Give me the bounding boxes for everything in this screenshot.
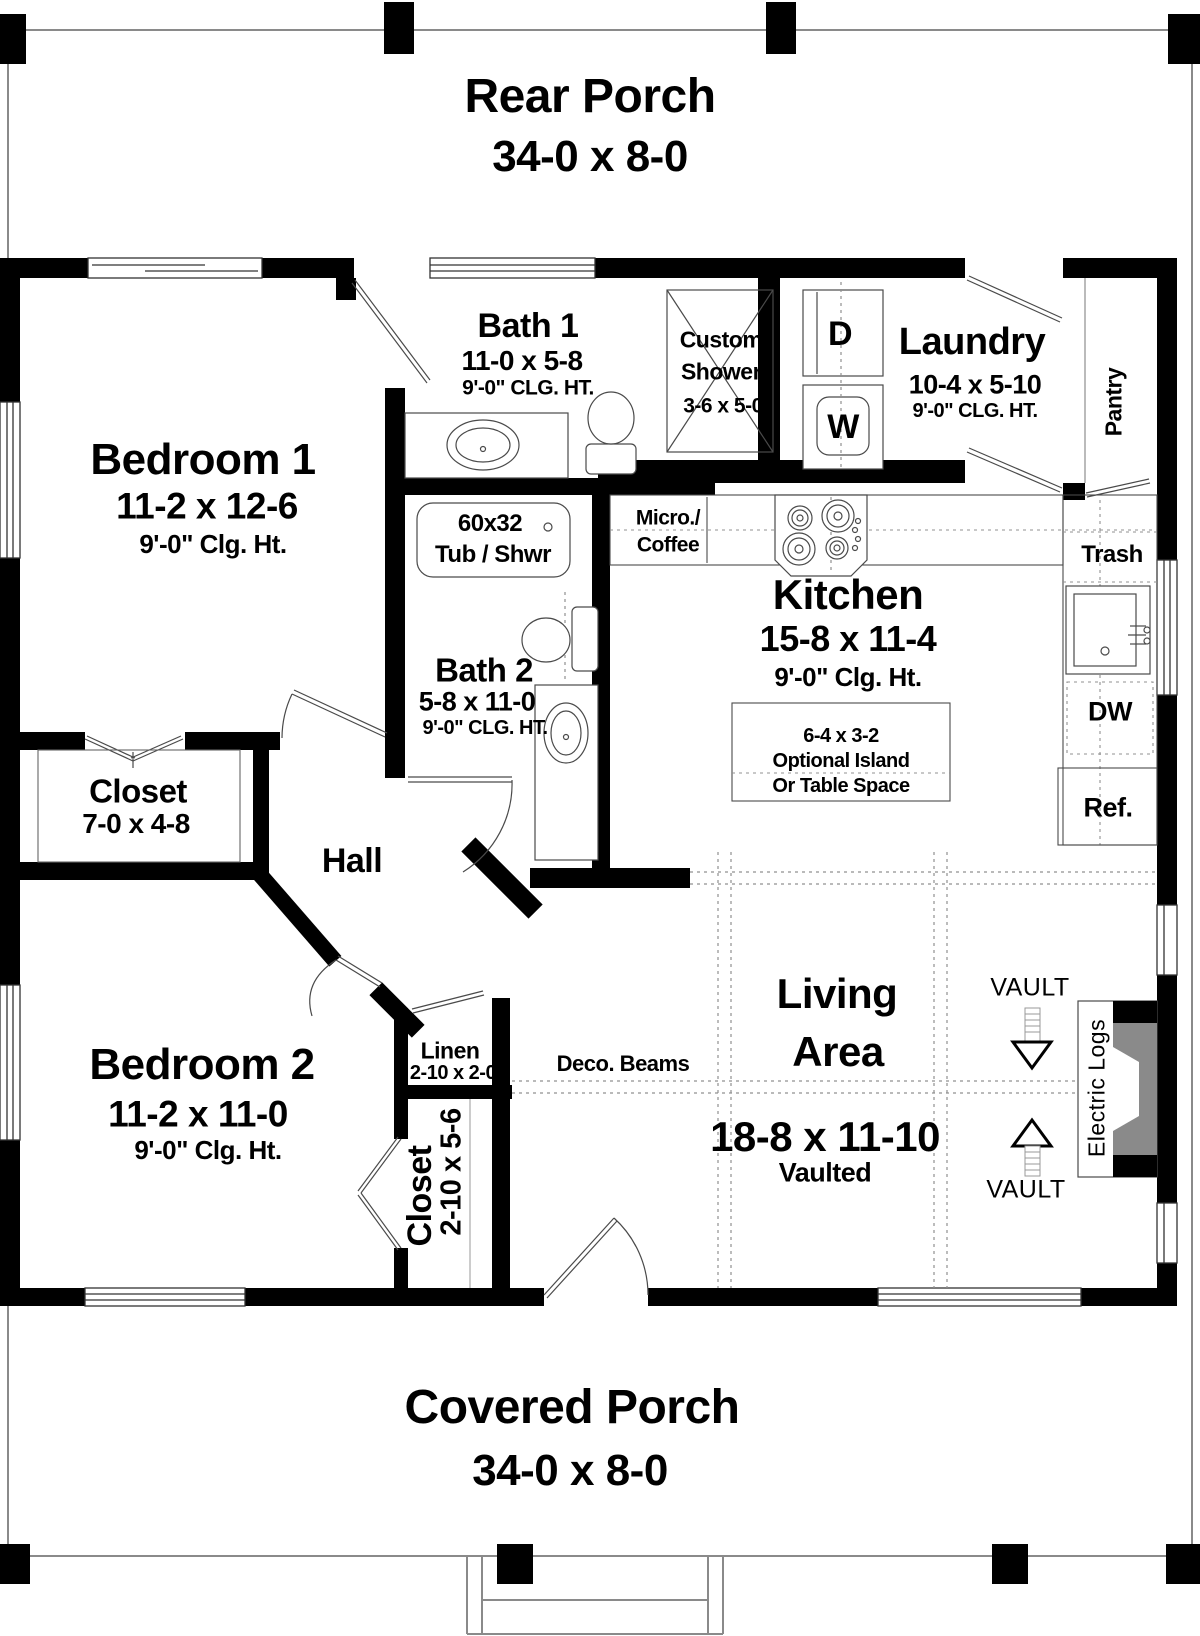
- bath2-name: Bath 2: [435, 654, 533, 687]
- custom-shower-line2: Shower: [681, 361, 761, 384]
- laundry-dims: 10-4 x 5-10: [909, 372, 1042, 399]
- kitchen-name: Kitchen: [773, 574, 924, 616]
- toilet1-tank: [586, 444, 636, 474]
- electric-logs-label: Electric Logs: [1086, 1019, 1109, 1157]
- micro-line2: Coffee: [637, 535, 699, 556]
- toilet2-tank: [572, 607, 598, 671]
- hall-label: Hall: [322, 844, 382, 878]
- dishwasher-label: DW: [1088, 699, 1132, 726]
- vault-arrow-up: [1013, 1120, 1051, 1176]
- bedroom1-name: Bedroom 1: [90, 438, 315, 482]
- rear-porch-dims: 34-0 x 8-0: [492, 135, 688, 179]
- bedroom1-ceiling: 9'-0" Clg. Ht.: [139, 531, 286, 557]
- bedroom1-dims: 11-2 x 12-6: [116, 488, 298, 525]
- living-dims: 18-8 x 11-10: [710, 1116, 940, 1158]
- tub-line1: 60x32: [458, 512, 522, 536]
- dryer-label: D: [828, 317, 852, 351]
- custom-shower-line1: Custom: [680, 329, 763, 352]
- bedroom2-dims: 11-2 x 11-0: [108, 1096, 288, 1133]
- covered-porch-dims: 34-0 x 8-0: [472, 1449, 668, 1493]
- linen-name: Linen: [421, 1040, 480, 1063]
- bath1-ceiling: 9'-0" CLG. HT.: [462, 378, 594, 399]
- micro-line1: Micro./: [636, 508, 700, 529]
- closet2-dims: 2-10 x 5-6: [438, 1108, 467, 1235]
- closet1-name: Closet: [89, 775, 187, 808]
- refrigerator-label: Ref.: [1083, 795, 1132, 822]
- bath2-ceiling: 9'-0" CLG. HT.: [422, 718, 547, 738]
- laundry-ceiling: 9'-0" CLG. HT.: [912, 401, 1037, 421]
- living-name-line1: Living: [777, 973, 898, 1015]
- island-dims: 6-4 x 3-2: [803, 726, 879, 746]
- kitchen-ceiling: 9'-0" Clg. Ht.: [774, 664, 921, 690]
- bedroom2-ceiling: 9'-0" Clg. Ht.: [134, 1137, 281, 1163]
- kitchen-dims: 15-8 x 11-4: [760, 621, 937, 657]
- living-name-line2: Area: [792, 1031, 883, 1073]
- living-note: Vaulted: [779, 1160, 872, 1187]
- range-stove: [775, 495, 867, 576]
- bath2-dims: 5-8 x 11-0: [419, 689, 536, 716]
- bath1-dims: 11-0 x 5-8: [461, 347, 582, 375]
- closet1-dims: 7-0 x 4-8: [82, 810, 190, 838]
- island-line3: Or Table Space: [772, 776, 909, 796]
- rear-porch-name: Rear Porch: [464, 73, 715, 121]
- bath1-name: Bath 1: [478, 309, 579, 343]
- vault-label-bottom: VAULT: [986, 1178, 1065, 1203]
- bath1-fixtures: [405, 392, 636, 478]
- deco-beams-label: Deco. Beams: [557, 1053, 690, 1075]
- pantry-label: Pantry: [1103, 368, 1126, 437]
- closet2-name: Closet: [403, 1146, 437, 1247]
- floor-plan: Rear Porch 34-0 x 8-0 Bath 1 11-0 x 5-8 …: [0, 0, 1200, 1636]
- trash-label: Trash: [1081, 543, 1143, 567]
- island-line2: Optional Island: [773, 751, 910, 771]
- linen-dims: 2-10 x 2-0: [410, 1063, 496, 1083]
- kitchen-sink: [1066, 586, 1150, 674]
- custom-shower-dims: 3-6 x 5-0: [683, 396, 763, 417]
- toilet1-bowl: [588, 392, 634, 444]
- washer-label: W: [827, 410, 859, 444]
- tub-line2: Tub / Shwr: [435, 543, 551, 567]
- bedroom2-name: Bedroom 2: [89, 1043, 314, 1087]
- covered-porch-name: Covered Porch: [405, 1384, 740, 1432]
- vault-label-top: VAULT: [990, 976, 1069, 1001]
- laundry-name: Laundry: [899, 323, 1045, 361]
- vault-arrow-down: [1013, 1008, 1051, 1068]
